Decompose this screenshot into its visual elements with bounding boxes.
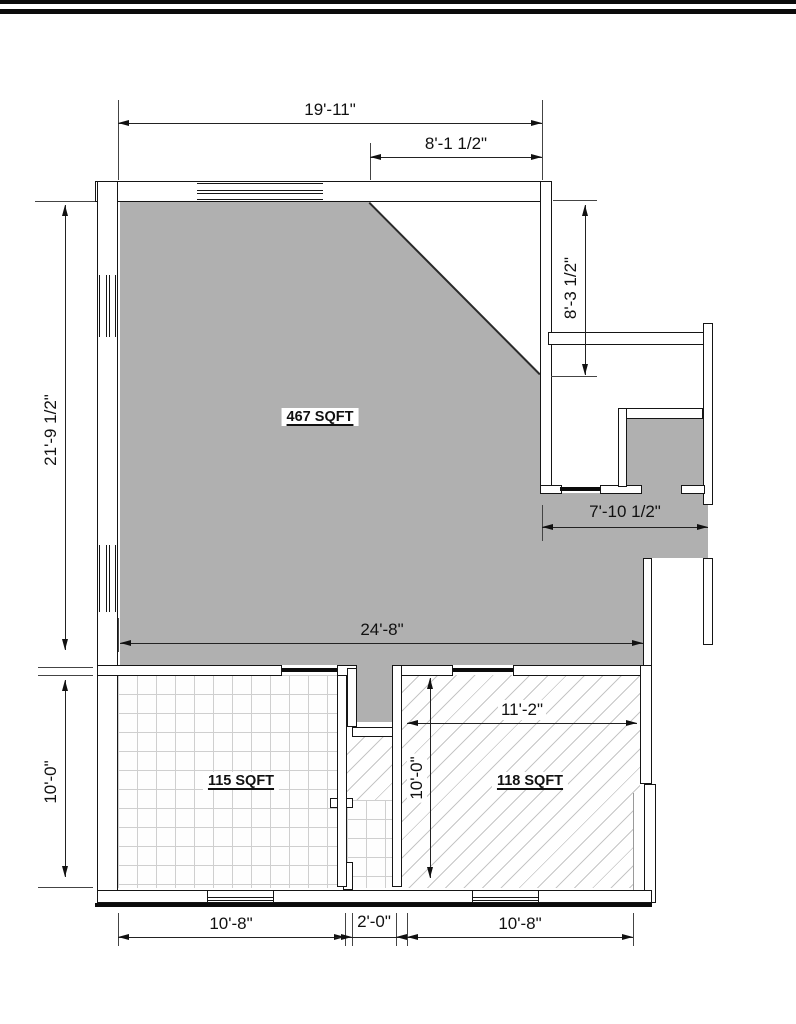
dimline-left-lower <box>65 680 66 877</box>
floor-plan: 19'-11" 8'-1 1/2" 8'-3 1/2" 7'-10 1/2" 2… <box>0 0 796 1024</box>
wall-115-right <box>337 675 347 887</box>
arrow <box>632 640 643 646</box>
extline <box>396 913 397 946</box>
window-top <box>197 183 323 200</box>
wall-mainbottom-right <box>513 665 652 676</box>
dim-left-main-height: 21'-9 1/2" <box>41 394 61 466</box>
extline <box>551 376 597 377</box>
wall-bottom-a <box>97 890 208 903</box>
extline <box>633 913 634 946</box>
dimline-118-width <box>407 723 637 724</box>
wall-corridor-right-upper <box>643 558 652 670</box>
dimline-bottom-right <box>407 937 633 938</box>
arrow <box>120 640 131 646</box>
extline <box>38 675 93 676</box>
arrow <box>542 524 553 530</box>
wall-bottom-c <box>538 890 652 903</box>
dim-top-partial: 8'-1 1/2" <box>425 134 487 154</box>
arrow <box>341 934 352 940</box>
top-rule-2 <box>0 9 796 14</box>
wall-top <box>95 181 552 202</box>
corridor-hatch-floor <box>347 737 392 800</box>
room-label-115: 115 SQFT <box>203 772 279 790</box>
extline <box>370 143 371 180</box>
wall-118-right-lower <box>644 784 656 903</box>
wall-118-right-upper <box>640 665 652 784</box>
closet-floor <box>627 418 703 485</box>
dim-right-upper-height: 8'-3 1/2" <box>561 257 581 319</box>
arrow <box>396 934 407 940</box>
room-118-inset-strip <box>633 793 644 890</box>
wall-closet-top <box>618 408 703 419</box>
extline <box>35 201 95 202</box>
wall-bottom-b <box>273 890 473 903</box>
arrow <box>62 866 68 877</box>
wall-alcove-bottom-left <box>540 485 562 494</box>
dim-main-width: 24'-8" <box>360 620 403 640</box>
dimline-top-partial <box>370 157 542 158</box>
corridor-tile-floor <box>347 800 392 888</box>
wall-exterior-right-lower <box>703 558 713 645</box>
dimline-right-upper <box>585 205 586 375</box>
wall-corridor-left <box>347 668 357 727</box>
dim-118-width: 11'-2" <box>498 700 546 720</box>
arrow <box>407 720 418 726</box>
arrow <box>118 934 129 940</box>
dimline-corridor <box>430 678 431 878</box>
extline <box>542 505 543 541</box>
dim-passage-width: 7'-10 1/2" <box>589 502 661 522</box>
window-left-lower <box>99 545 116 612</box>
extline <box>553 200 597 201</box>
arrow <box>582 364 588 375</box>
extline <box>38 887 93 888</box>
arrow <box>531 120 542 126</box>
door-opening-115 <box>282 668 337 672</box>
extline <box>118 618 119 652</box>
wall-mainbottom-left <box>97 665 282 676</box>
arrow <box>626 720 637 726</box>
dim-left-lower-height: 10'-0" <box>41 760 61 803</box>
room-label-118: 118 SQFT <box>492 772 568 790</box>
closet-door-connector <box>642 485 681 494</box>
arrow <box>62 205 68 216</box>
extline <box>345 913 346 946</box>
arrow <box>62 639 68 650</box>
dim-top-width: 19'-11" <box>304 100 356 120</box>
dim-bottom-center-width: 2'-0" <box>357 912 391 932</box>
wall-118-left <box>392 665 402 887</box>
window-bottom-115 <box>208 890 273 903</box>
extline <box>407 913 408 946</box>
dimline-top-width <box>118 123 542 124</box>
dim-corridor-height: 10'-0" <box>407 753 427 802</box>
wall-alcove-bottom-right <box>681 485 705 494</box>
window-bottom-118 <box>473 890 538 903</box>
arrow <box>622 934 633 940</box>
wall-corridor-bar <box>352 727 393 737</box>
wall-exterior-right-upper <box>703 323 713 505</box>
extline <box>118 913 119 946</box>
room-label-467: 467 SQFT <box>282 408 359 426</box>
dimline-main-width <box>120 643 643 644</box>
arrow <box>407 934 418 940</box>
dimline-bottom-left <box>118 937 345 938</box>
window-left-upper <box>99 275 116 337</box>
arrow <box>370 154 381 160</box>
dimline-left-main <box>65 205 66 650</box>
wall-alcove-top <box>548 332 713 345</box>
door-threshold-alcove <box>560 487 602 491</box>
dim-bottom-left-width: 10'-8" <box>209 914 252 934</box>
extline <box>118 100 119 180</box>
dim-bottom-right-width: 10'-8" <box>498 914 541 934</box>
arrow <box>62 680 68 691</box>
arrow <box>582 205 588 216</box>
arrow <box>427 867 433 878</box>
wall-closet-left <box>618 408 627 487</box>
wall-mainbottom-mid <box>393 665 453 676</box>
extline <box>352 913 353 946</box>
arrow <box>118 120 129 126</box>
door-opening-118 <box>453 668 513 672</box>
arrow <box>697 524 708 530</box>
arrow <box>427 678 433 689</box>
arrow <box>531 154 542 160</box>
extline <box>542 100 543 180</box>
wall-bottom-outer-line <box>95 903 652 907</box>
top-rule-1 <box>0 0 796 4</box>
dimline-passage <box>542 527 708 528</box>
extline <box>38 667 93 668</box>
